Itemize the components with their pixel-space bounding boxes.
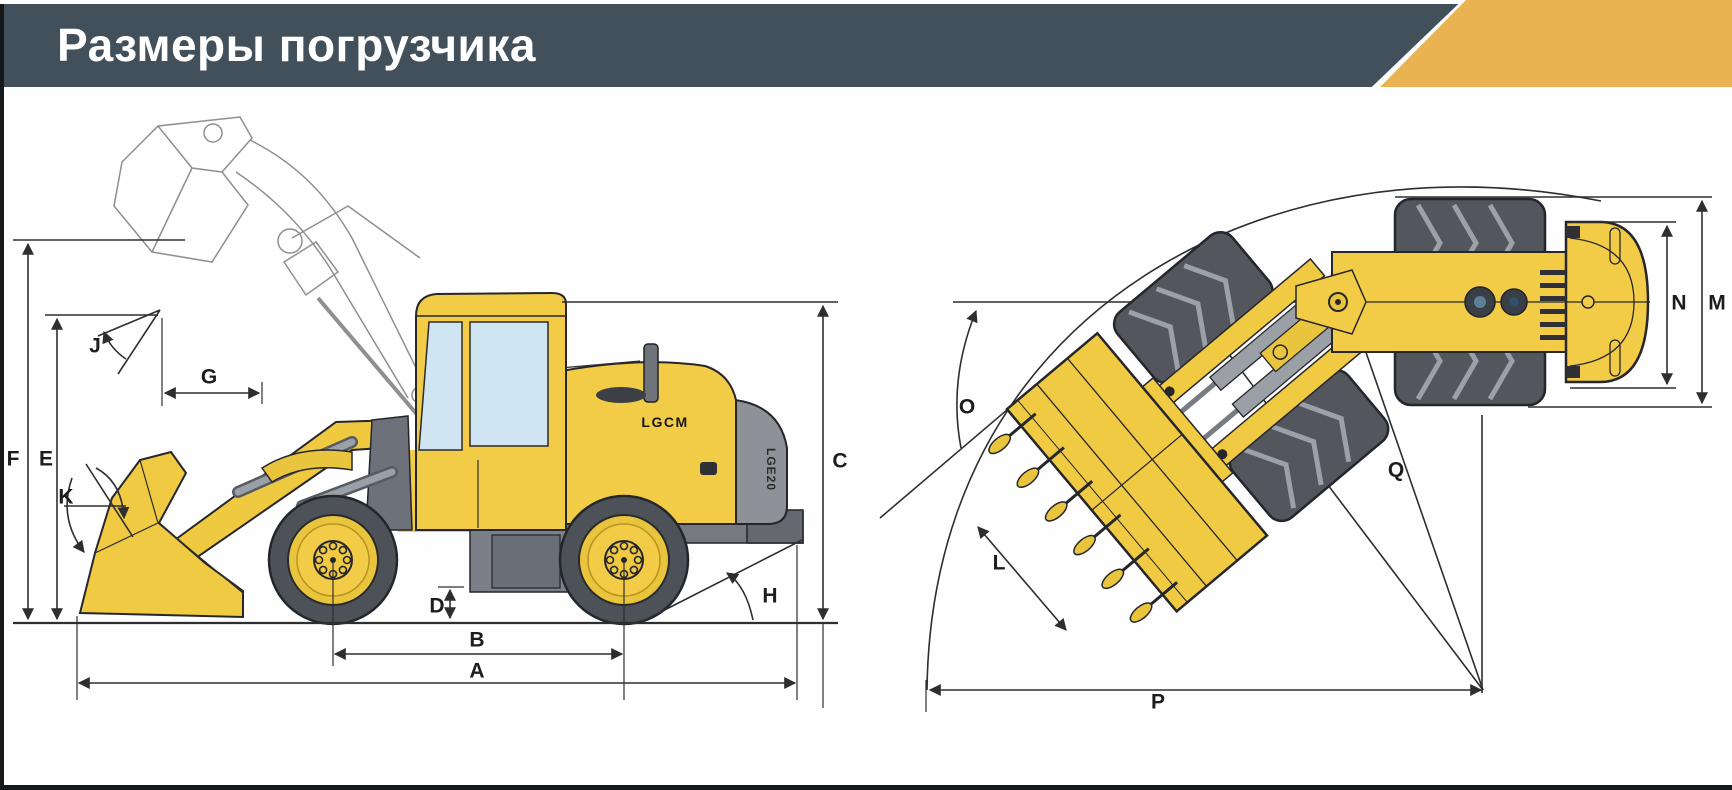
dim-label-m: M: [1708, 292, 1726, 315]
dim-label-p: P: [1151, 691, 1165, 714]
loader-top-body: [974, 196, 1650, 639]
diagram-canvas: LGCM LGE20: [0, 0, 1732, 790]
dim-label-k: K: [58, 486, 73, 509]
slide: Размеры погрузчика: [0, 0, 1732, 790]
air-precleaner: [596, 387, 646, 403]
dim-label-e: E: [39, 448, 53, 471]
dim-label-h: H: [762, 585, 777, 608]
side-window: [470, 322, 548, 446]
dim-label-l: L: [993, 552, 1006, 575]
dim-label-a: A: [469, 660, 484, 683]
dim-label-n: N: [1671, 292, 1686, 315]
brand-logo: LGCM: [641, 414, 688, 430]
hood-emblem: [700, 462, 717, 475]
dim-label-c: C: [832, 450, 847, 473]
loader-side-body: LGCM LGE20: [80, 293, 803, 624]
dim-label-g: G: [201, 366, 217, 389]
top-view-diagram: O L Q P N M: [880, 187, 1726, 714]
dim-label-f: F: [7, 448, 20, 471]
dim-label-b: B: [469, 629, 484, 652]
model-label: LGE20: [764, 448, 778, 491]
raised-bucket-outline: [114, 117, 428, 418]
dim-label-o: O: [959, 396, 975, 419]
dim-label-j: J: [89, 335, 101, 358]
dim-label-d: D: [429, 595, 444, 618]
exhaust-pipe: [644, 344, 658, 402]
side-view-diagram: LGCM LGE20: [7, 117, 848, 708]
dim-label-q: Q: [1388, 459, 1404, 482]
counterweight: [735, 400, 787, 524]
